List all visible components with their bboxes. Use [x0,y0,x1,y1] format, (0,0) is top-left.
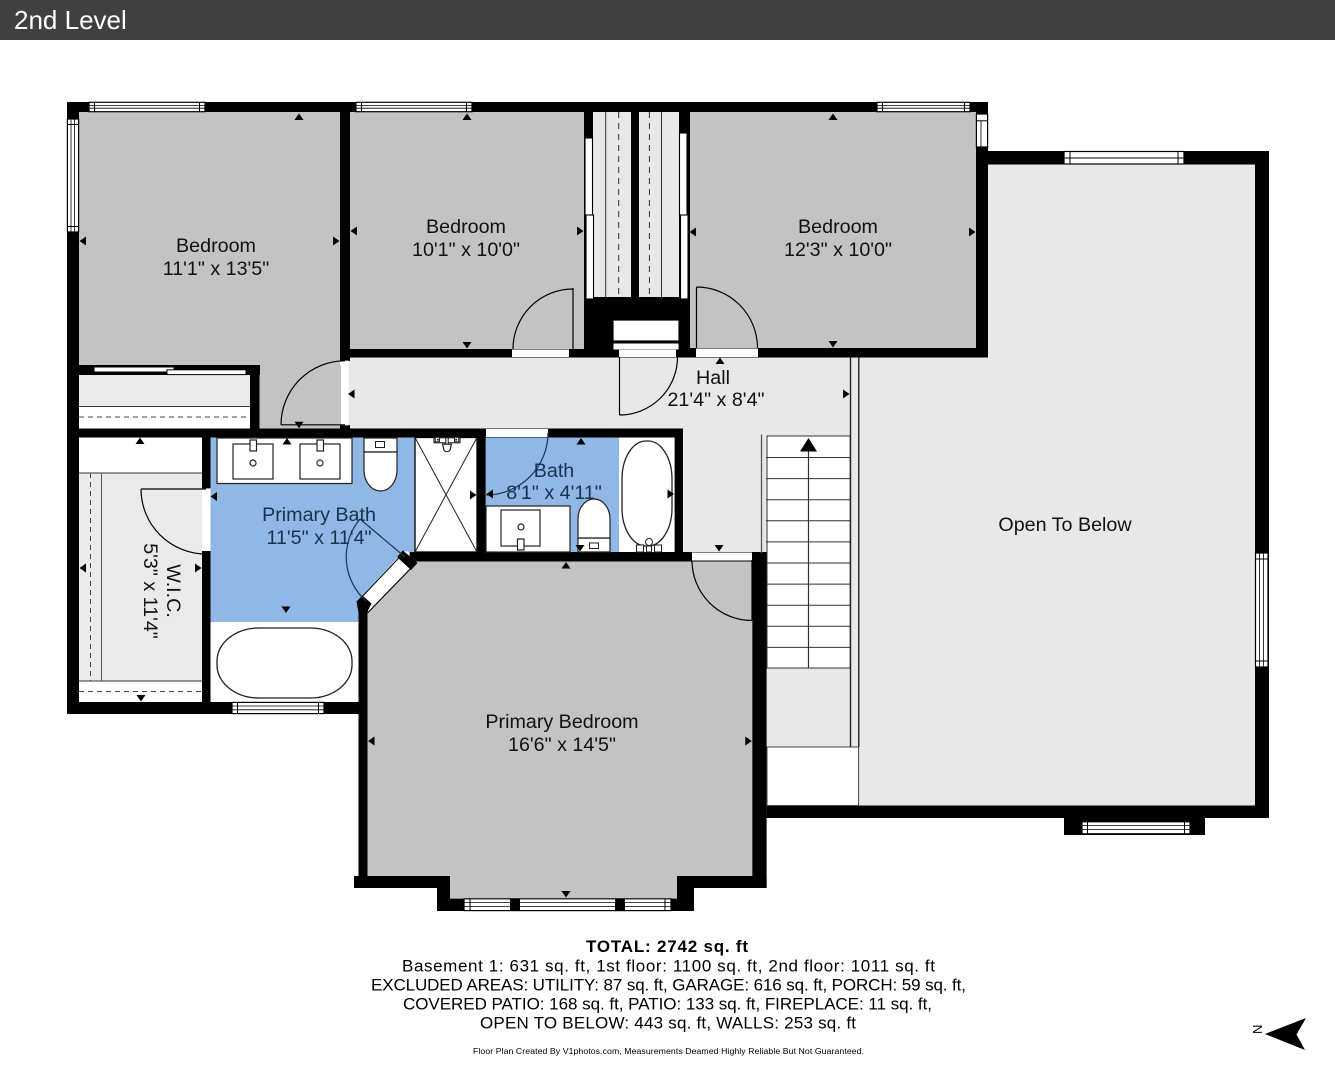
svg-text:W.I.C.: W.I.C. [162,564,184,618]
svg-text:COVERED PATIO: 168 sq. ft, PAT: COVERED PATIO: 168 sq. ft, PATIO: 133 sq… [403,995,932,1014]
svg-text:Bedroom: Bedroom [426,216,506,238]
svg-text:Hall: Hall [696,367,730,389]
svg-text:Bath: Bath [534,460,575,482]
svg-text:OPEN TO BELOW: 443 sq. ft, WAL: OPEN TO BELOW: 443 sq. ft, WALLS: 253 sq… [480,1014,856,1033]
svg-text:11'1" x 13'5": 11'1" x 13'5" [163,258,270,280]
svg-text:5'3" x 11'4": 5'3" x 11'4" [139,543,161,639]
svg-text:2nd Level: 2nd Level [14,5,127,35]
svg-text:10'1" x 10'0": 10'1" x 10'0" [412,239,520,261]
svg-text:N: N [1250,1025,1265,1034]
svg-text:Open To Below: Open To Below [998,514,1132,536]
svg-text:8'1" x 4'11": 8'1" x 4'11" [506,482,602,504]
svg-text:Bedroom: Bedroom [798,216,878,238]
svg-text:Basement 1: 631 sq. ft, 1st fl: Basement 1: 631 sq. ft, 1st floor: 1100 … [402,957,935,976]
svg-text:Primary Bath: Primary Bath [262,504,376,526]
svg-text:Bedroom: Bedroom [176,235,256,257]
svg-text:EXCLUDED AREAS: UTILITY: 87 sq: EXCLUDED AREAS: UTILITY: 87 sq. ft, GARA… [371,976,966,995]
svg-text:TOTAL: 2742 sq. ft: TOTAL: 2742 sq. ft [586,937,748,956]
svg-text:Floor Plan Created By V1photos: Floor Plan Created By V1photos.com, Meas… [473,1046,864,1056]
svg-text:21'4" x 8'4": 21'4" x 8'4" [667,389,764,411]
svg-text:12'3" x 10'0": 12'3" x 10'0" [784,239,892,261]
svg-text:11'5" x 11'4": 11'5" x 11'4" [266,527,371,549]
svg-text:16'6" x 14'5": 16'6" x 14'5" [508,734,616,756]
svg-text:Primary Bedroom: Primary Bedroom [485,711,638,733]
